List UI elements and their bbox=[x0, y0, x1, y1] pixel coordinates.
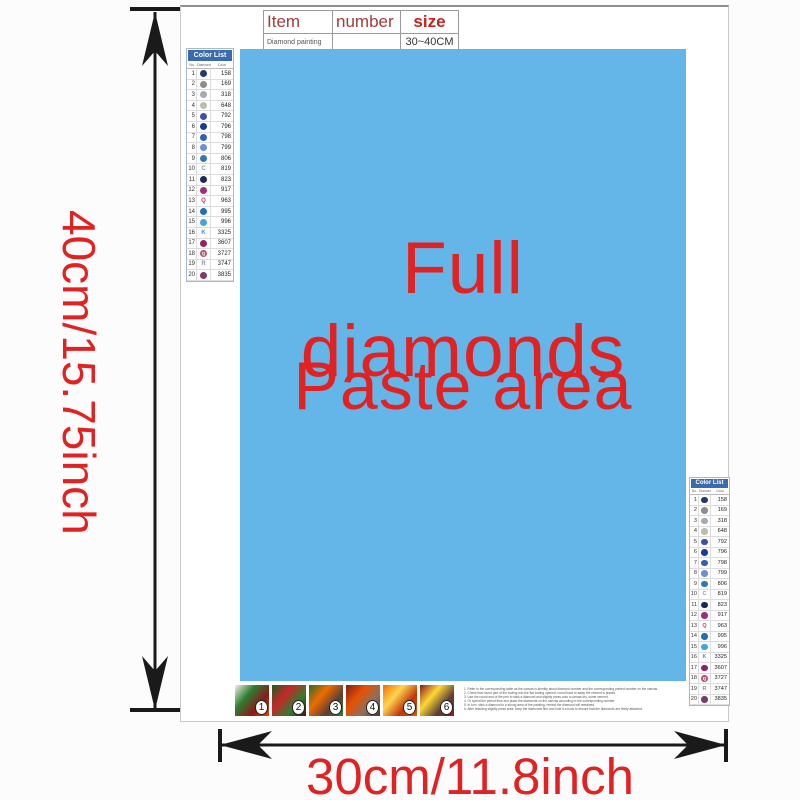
color-row-number: 4 bbox=[187, 101, 197, 111]
diamond-symbol bbox=[699, 548, 711, 558]
color-list-row: 6796 bbox=[187, 122, 233, 133]
color-code: 648 bbox=[211, 103, 233, 109]
diamond-symbol bbox=[197, 207, 211, 217]
color-row-number: 8 bbox=[690, 569, 699, 579]
color-list-row: 12917 bbox=[690, 611, 729, 622]
diamond-dot-icon bbox=[701, 518, 708, 525]
diamond-dot-letter: Q bbox=[200, 250, 207, 257]
color-list-row: 2169 bbox=[187, 80, 233, 91]
diamond-dot-icon: Q bbox=[701, 675, 708, 682]
diamond-symbol: C bbox=[197, 164, 211, 174]
color-list-row: 10C819 bbox=[187, 164, 233, 175]
color-list-row: 173607 bbox=[187, 239, 233, 250]
diamond-dot-icon bbox=[200, 240, 207, 247]
diamond-symbol bbox=[197, 239, 211, 249]
color-list-row: 15996 bbox=[187, 217, 233, 228]
spec-value-item: Diamond painting bbox=[264, 34, 333, 50]
diamond-symbol bbox=[197, 143, 211, 153]
color-code: 169 bbox=[211, 81, 233, 87]
diamond-dot-icon bbox=[200, 272, 207, 279]
spec-value-size: 30~40CM bbox=[401, 34, 458, 50]
diamond-letter-icon: C bbox=[201, 166, 205, 172]
color-row-number: 15 bbox=[690, 642, 699, 652]
spec-table-value-row: Diamond painting 30~40CM bbox=[264, 33, 458, 50]
diamond-dot-icon bbox=[701, 539, 708, 546]
diamond-dot-icon bbox=[200, 102, 207, 109]
diamond-dot-icon bbox=[200, 219, 207, 226]
color-list-row: 19R3747 bbox=[690, 684, 729, 695]
color-row-number: 18 bbox=[187, 249, 197, 259]
color-list-row: 12917 bbox=[187, 186, 233, 197]
diamond-dot-icon bbox=[701, 644, 708, 651]
color-list-column-label: Diamond bbox=[197, 63, 211, 67]
color-list-row: 1158 bbox=[690, 495, 729, 506]
diamond-symbol bbox=[197, 154, 211, 164]
diamond-dot-icon bbox=[200, 144, 207, 151]
color-list-row: 4648 bbox=[187, 101, 233, 112]
diamond-letter-icon: C bbox=[703, 591, 707, 597]
color-code: 823 bbox=[211, 177, 233, 183]
color-list-row: 13Q963 bbox=[690, 621, 729, 632]
color-row-number: 5 bbox=[690, 537, 699, 547]
diamond-letter-icon: Q bbox=[201, 198, 206, 204]
paste-area-title-line2: Paste area bbox=[240, 347, 686, 425]
diamond-dot-icon bbox=[701, 528, 708, 535]
color-code: 796 bbox=[711, 549, 729, 555]
color-code: 819 bbox=[211, 166, 233, 172]
color-list-row: 7798 bbox=[690, 558, 729, 569]
color-list-column-label: No. bbox=[187, 63, 197, 67]
thumbnail-number-badge: 4 bbox=[366, 700, 379, 715]
diamond-symbol: Q bbox=[197, 249, 211, 259]
color-list-header: Color List bbox=[188, 50, 232, 61]
color-code: 3607 bbox=[211, 240, 233, 246]
diamond-symbol: C bbox=[699, 590, 711, 600]
diamond-symbol bbox=[197, 270, 211, 280]
color-row-number: 16 bbox=[690, 653, 699, 663]
color-code: 792 bbox=[711, 539, 729, 545]
color-code: 3747 bbox=[711, 686, 729, 692]
diamond-symbol bbox=[197, 186, 211, 196]
color-code: 648 bbox=[711, 528, 729, 534]
diamond-symbol bbox=[699, 695, 711, 705]
diamond-dot-icon bbox=[200, 113, 207, 120]
color-row-number: 3 bbox=[690, 516, 699, 526]
color-code: 806 bbox=[711, 581, 729, 587]
diamond-dot-icon bbox=[200, 187, 207, 194]
color-row-number: 11 bbox=[690, 600, 699, 610]
color-code: 823 bbox=[711, 602, 729, 608]
color-list-row: 7798 bbox=[187, 133, 233, 144]
color-row-number: 14 bbox=[690, 632, 699, 642]
color-list-column-label: Color bbox=[211, 63, 233, 67]
color-list-row: 8799 bbox=[690, 569, 729, 580]
color-code: 799 bbox=[211, 145, 233, 151]
color-code: 995 bbox=[711, 633, 729, 639]
color-list-row: 3318 bbox=[690, 516, 729, 527]
color-list-row: 173607 bbox=[690, 663, 729, 674]
diamond-dot-icon bbox=[200, 123, 207, 130]
diamond-dot-icon bbox=[701, 612, 708, 619]
color-row-number: 1 bbox=[690, 495, 699, 505]
diamond-letter-icon: R bbox=[703, 686, 707, 692]
diamond-symbol bbox=[699, 632, 711, 642]
example-thumbnail: 2 bbox=[272, 685, 306, 716]
color-code: 318 bbox=[211, 92, 233, 98]
diamond-symbol bbox=[699, 663, 711, 673]
color-list-header: Color List bbox=[691, 479, 728, 488]
color-list-column-label: No. bbox=[690, 489, 699, 493]
diamond-dot-icon bbox=[200, 81, 207, 88]
diamond-letter-icon: R bbox=[201, 261, 205, 267]
diamond-symbol: Q bbox=[197, 196, 211, 206]
color-list-row: 4648 bbox=[690, 527, 729, 538]
color-row-number: 12 bbox=[690, 611, 699, 621]
color-code: 996 bbox=[711, 644, 729, 650]
paste-area: Full diamonds Paste area bbox=[240, 49, 686, 681]
color-code: 3325 bbox=[711, 654, 729, 660]
diamond-letter-icon: Q bbox=[702, 623, 706, 629]
color-row-number: 9 bbox=[187, 154, 197, 164]
color-list-row: 11823 bbox=[690, 600, 729, 611]
diamond-symbol bbox=[699, 527, 711, 537]
thumbnail-number-badge: 2 bbox=[292, 700, 305, 715]
color-row-number: 13 bbox=[690, 621, 699, 631]
diamond-symbol bbox=[197, 133, 211, 143]
diamond-symbol: R bbox=[197, 260, 211, 270]
color-code: 798 bbox=[211, 134, 233, 140]
color-list-column-label: Diamond bbox=[699, 489, 711, 493]
diamond-dot-icon bbox=[701, 570, 708, 577]
color-list-row: 6796 bbox=[690, 548, 729, 559]
color-code: 917 bbox=[711, 612, 729, 618]
color-code: 3325 bbox=[211, 230, 233, 236]
diamond-dot-icon bbox=[200, 134, 207, 141]
diamond-dot-icon bbox=[701, 560, 708, 567]
diamond-dot-icon bbox=[701, 497, 708, 504]
width-dimension-label: 30cm/11.8inch bbox=[230, 747, 710, 800]
color-row-number: 14 bbox=[187, 207, 197, 217]
color-row-number: 4 bbox=[690, 527, 699, 537]
color-list-row: 203835 bbox=[187, 270, 233, 281]
color-list-column-headers: No.DiamondColor bbox=[690, 488, 729, 495]
color-row-number: 5 bbox=[187, 111, 197, 121]
diamond-symbol bbox=[699, 569, 711, 579]
color-code: 158 bbox=[211, 71, 233, 77]
color-row-number: 1 bbox=[187, 69, 197, 79]
height-dimension-label: 40cm/15.75inch bbox=[52, 210, 106, 610]
color-code: 3727 bbox=[711, 675, 729, 681]
color-row-number: 17 bbox=[690, 663, 699, 673]
color-row-number: 13 bbox=[187, 196, 197, 206]
diamond-symbol bbox=[197, 101, 211, 111]
spec-table: Item number size Diamond painting 30~40C… bbox=[263, 10, 459, 51]
spec-table-header-row: Item number size bbox=[264, 11, 458, 33]
diamond-symbol bbox=[699, 642, 711, 652]
color-row-number: 19 bbox=[187, 260, 197, 270]
diamond-dot-icon bbox=[701, 696, 708, 703]
color-list-row: 14995 bbox=[187, 207, 233, 218]
height-dimension-arrow bbox=[128, 4, 186, 718]
example-thumbnails: 123456 bbox=[235, 685, 454, 716]
diamond-letter-icon: K bbox=[703, 654, 707, 660]
color-row-number: 3 bbox=[187, 90, 197, 100]
color-code: 798 bbox=[711, 560, 729, 566]
diamond-symbol bbox=[699, 537, 711, 547]
spec-header-item: Item bbox=[264, 11, 333, 33]
color-list-column-label: Color bbox=[711, 489, 729, 493]
color-list-row: 3318 bbox=[187, 90, 233, 101]
diamond-dot-icon: Q bbox=[200, 250, 207, 257]
diamond-symbol: Q bbox=[699, 621, 711, 631]
diamond-symbol bbox=[699, 495, 711, 505]
diamond-symbol bbox=[197, 122, 211, 132]
diamond-symbol bbox=[699, 516, 711, 526]
color-list-right: Color ListNo.DiamondColor115821693318464… bbox=[689, 477, 730, 706]
color-code: 158 bbox=[711, 497, 729, 503]
color-code: 3607 bbox=[711, 665, 729, 671]
color-row-number: 7 bbox=[690, 558, 699, 568]
example-thumbnail: 3 bbox=[309, 685, 343, 716]
thumbnail-number-badge: 6 bbox=[440, 700, 453, 715]
thumbnail-number-badge: 1 bbox=[255, 700, 268, 715]
color-code: 3727 bbox=[211, 251, 233, 257]
color-code: 963 bbox=[711, 623, 729, 629]
color-row-number: 10 bbox=[187, 164, 197, 174]
thumbnail-number-badge: 5 bbox=[403, 700, 416, 715]
color-list-row: 9806 bbox=[690, 579, 729, 590]
color-row-number: 6 bbox=[690, 548, 699, 558]
color-code: 3835 bbox=[211, 272, 233, 278]
diamond-symbol bbox=[197, 90, 211, 100]
color-row-number: 11 bbox=[187, 175, 197, 185]
color-row-number: 2 bbox=[187, 80, 197, 90]
color-code: 799 bbox=[711, 570, 729, 576]
color-row-number: 2 bbox=[690, 506, 699, 516]
color-list-row: 15996 bbox=[690, 642, 729, 653]
example-thumbnail: 5 bbox=[383, 685, 417, 716]
product-infographic: 40cm/15.75inch 30cm/11.8inch Item number… bbox=[0, 0, 800, 800]
spec-value-number bbox=[333, 34, 401, 50]
diamond-symbol bbox=[197, 80, 211, 90]
diamond-dot-icon bbox=[200, 176, 207, 183]
color-code: 792 bbox=[211, 113, 233, 119]
color-code: 996 bbox=[211, 219, 233, 225]
diamond-symbol bbox=[699, 611, 711, 621]
color-code: 806 bbox=[211, 156, 233, 162]
example-thumbnail: 4 bbox=[346, 685, 380, 716]
canvas-sheet: Item number size Diamond painting 30~40C… bbox=[180, 5, 729, 722]
color-row-number: 6 bbox=[187, 122, 197, 132]
diamond-symbol bbox=[197, 69, 211, 79]
color-list-row: 10C819 bbox=[690, 590, 729, 601]
color-list-row: 13Q963 bbox=[187, 196, 233, 207]
diamond-dot-icon bbox=[701, 633, 708, 640]
diamond-symbol: K bbox=[699, 653, 711, 663]
color-code: 796 bbox=[211, 124, 233, 130]
color-list-row: 19R3747 bbox=[187, 260, 233, 271]
diamond-dot-icon bbox=[200, 208, 207, 215]
color-list-row: 14995 bbox=[690, 632, 729, 643]
color-list-row: 5792 bbox=[690, 537, 729, 548]
diamond-dot-icon bbox=[701, 665, 708, 672]
color-row-number: 18 bbox=[690, 674, 699, 684]
diamond-symbol bbox=[699, 558, 711, 568]
color-code: 169 bbox=[711, 507, 729, 513]
color-code: 3835 bbox=[711, 696, 729, 702]
color-code: 3747 bbox=[211, 261, 233, 267]
diamond-symbol bbox=[197, 111, 211, 121]
thumbnail-number-badge: 3 bbox=[329, 700, 342, 715]
color-code: 917 bbox=[211, 187, 233, 193]
color-row-number: 15 bbox=[187, 217, 197, 227]
color-list-row: 203835 bbox=[690, 695, 729, 706]
diamond-symbol bbox=[197, 217, 211, 227]
spec-header-number: number bbox=[333, 11, 401, 33]
diamond-dot-icon bbox=[701, 581, 708, 588]
instructions-text: 1. Refer to the corresponding table as t… bbox=[464, 687, 694, 711]
color-row-number: 10 bbox=[690, 590, 699, 600]
diamond-symbol: Q bbox=[699, 674, 711, 684]
color-list-left: Color ListNo.DiamondColor115821693318464… bbox=[186, 48, 234, 282]
color-list-row: 5792 bbox=[187, 111, 233, 122]
color-list-row: 16K3325 bbox=[187, 228, 233, 239]
diamond-dot-icon bbox=[200, 155, 207, 162]
color-code: 318 bbox=[711, 518, 729, 524]
color-row-number: 17 bbox=[187, 239, 197, 249]
example-thumbnail: 6 bbox=[420, 685, 454, 716]
color-list-row: 2169 bbox=[690, 506, 729, 517]
color-row-number: 20 bbox=[187, 270, 197, 280]
color-list-row: 8799 bbox=[187, 143, 233, 154]
diamond-symbol bbox=[197, 175, 211, 185]
color-list-row: 18Q3727 bbox=[187, 249, 233, 260]
color-list-row: 16K3325 bbox=[690, 653, 729, 664]
color-row-number: 16 bbox=[187, 228, 197, 238]
color-list-row: 11823 bbox=[187, 175, 233, 186]
color-row-number: 7 bbox=[187, 133, 197, 143]
spec-header-size: size bbox=[401, 11, 458, 33]
color-list-column-headers: No.DiamondColor bbox=[187, 61, 233, 69]
diamond-symbol bbox=[699, 600, 711, 610]
diamond-dot-icon bbox=[701, 507, 708, 514]
color-row-number: 9 bbox=[690, 579, 699, 589]
diamond-symbol: K bbox=[197, 228, 211, 238]
diamond-symbol: R bbox=[699, 684, 711, 694]
diamond-letter-icon: K bbox=[201, 230, 205, 236]
diamond-dot-icon bbox=[701, 549, 708, 556]
diamond-dot-icon bbox=[701, 602, 708, 609]
color-code: 963 bbox=[211, 198, 233, 204]
diamond-dot-letter: Q bbox=[701, 675, 708, 682]
color-list-row: 1158 bbox=[187, 69, 233, 80]
example-thumbnail: 1 bbox=[235, 685, 269, 716]
color-row-number: 12 bbox=[187, 186, 197, 196]
color-list-row: 18Q3727 bbox=[690, 674, 729, 685]
color-code: 819 bbox=[711, 591, 729, 597]
color-code: 995 bbox=[211, 209, 233, 215]
diamond-dot-icon bbox=[200, 91, 207, 98]
diamond-symbol bbox=[699, 579, 711, 589]
instruction-line: 6. After finishing slightly press area, … bbox=[464, 707, 694, 711]
color-list-row: 9806 bbox=[187, 154, 233, 165]
color-row-number: 8 bbox=[187, 143, 197, 153]
diamond-dot-icon bbox=[200, 70, 207, 77]
diamond-symbol bbox=[699, 506, 711, 516]
